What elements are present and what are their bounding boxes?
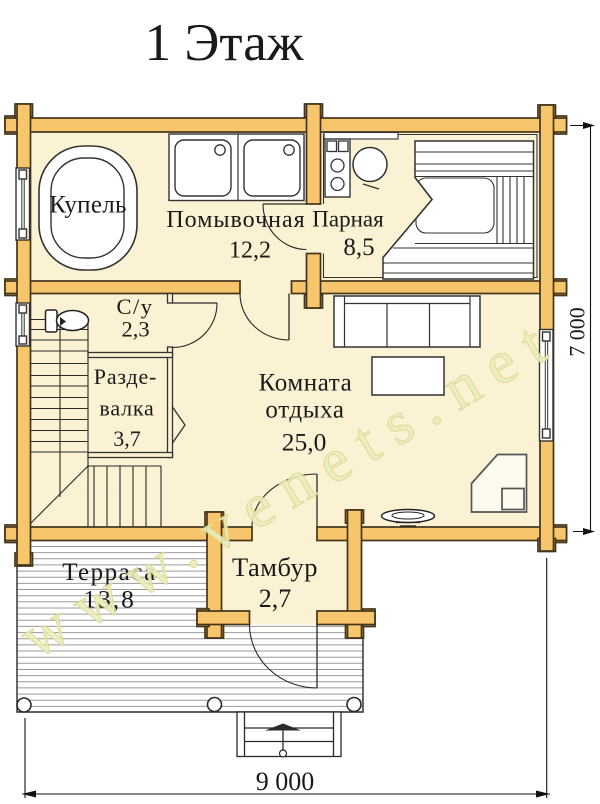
svg-text:2,3: 2,3 [121,317,149,342]
svg-text:7 000: 7 000 [565,307,590,357]
svg-text:Помывочная: Помывочная [166,207,305,233]
svg-text:9 000: 9 000 [256,767,315,796]
svg-text:12,2: 12,2 [229,238,271,264]
svg-text:валка: валка [99,396,154,421]
svg-text:Разде-: Разде- [94,364,157,389]
svg-text:Тамбур: Тамбур [232,552,318,582]
svg-text:Парная: Парная [312,207,384,232]
svg-text:С/у: С/у [116,294,153,319]
svg-text:отдыха: отдыха [265,397,344,424]
svg-text:Комната: Комната [259,370,353,397]
svg-text:Купель: Купель [49,192,126,219]
svg-text:3,7: 3,7 [113,426,141,451]
svg-text:8,5: 8,5 [343,234,374,261]
svg-text:1 Этаж: 1 Этаж [145,14,304,72]
svg-text:2,7: 2,7 [259,584,292,613]
